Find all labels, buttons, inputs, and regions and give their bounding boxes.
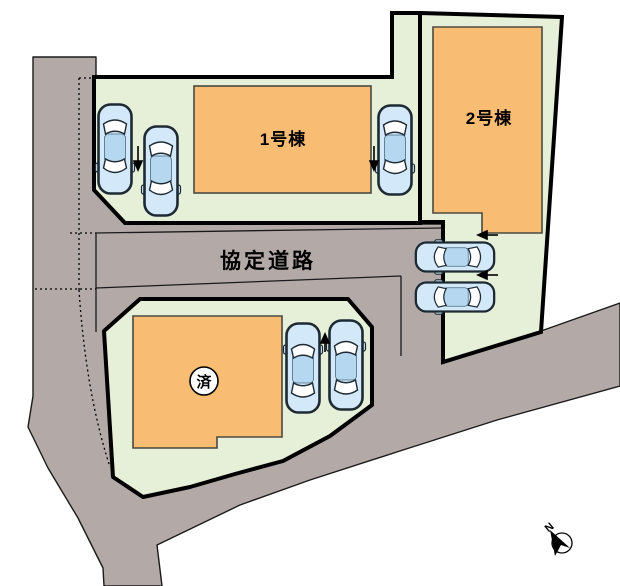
- compass-label: N: [543, 521, 557, 535]
- car: [327, 321, 366, 410]
- car: [416, 240, 494, 274]
- road-label: 協定道路: [220, 249, 316, 273]
- building-1-label: 1号棟: [260, 129, 306, 149]
- car: [416, 280, 494, 314]
- sold-badge-label: 済: [196, 373, 212, 391]
- car: [284, 324, 323, 413]
- car: [96, 105, 135, 194]
- car: [376, 106, 415, 195]
- building-2: [433, 27, 542, 233]
- site-plan-drawing: 済 1号棟 2号棟 協定道路 N: [0, 0, 620, 586]
- compass: N: [543, 521, 572, 556]
- building-2-label: 2号棟: [466, 108, 512, 128]
- car: [142, 127, 181, 216]
- sold-badge: 済: [190, 367, 218, 395]
